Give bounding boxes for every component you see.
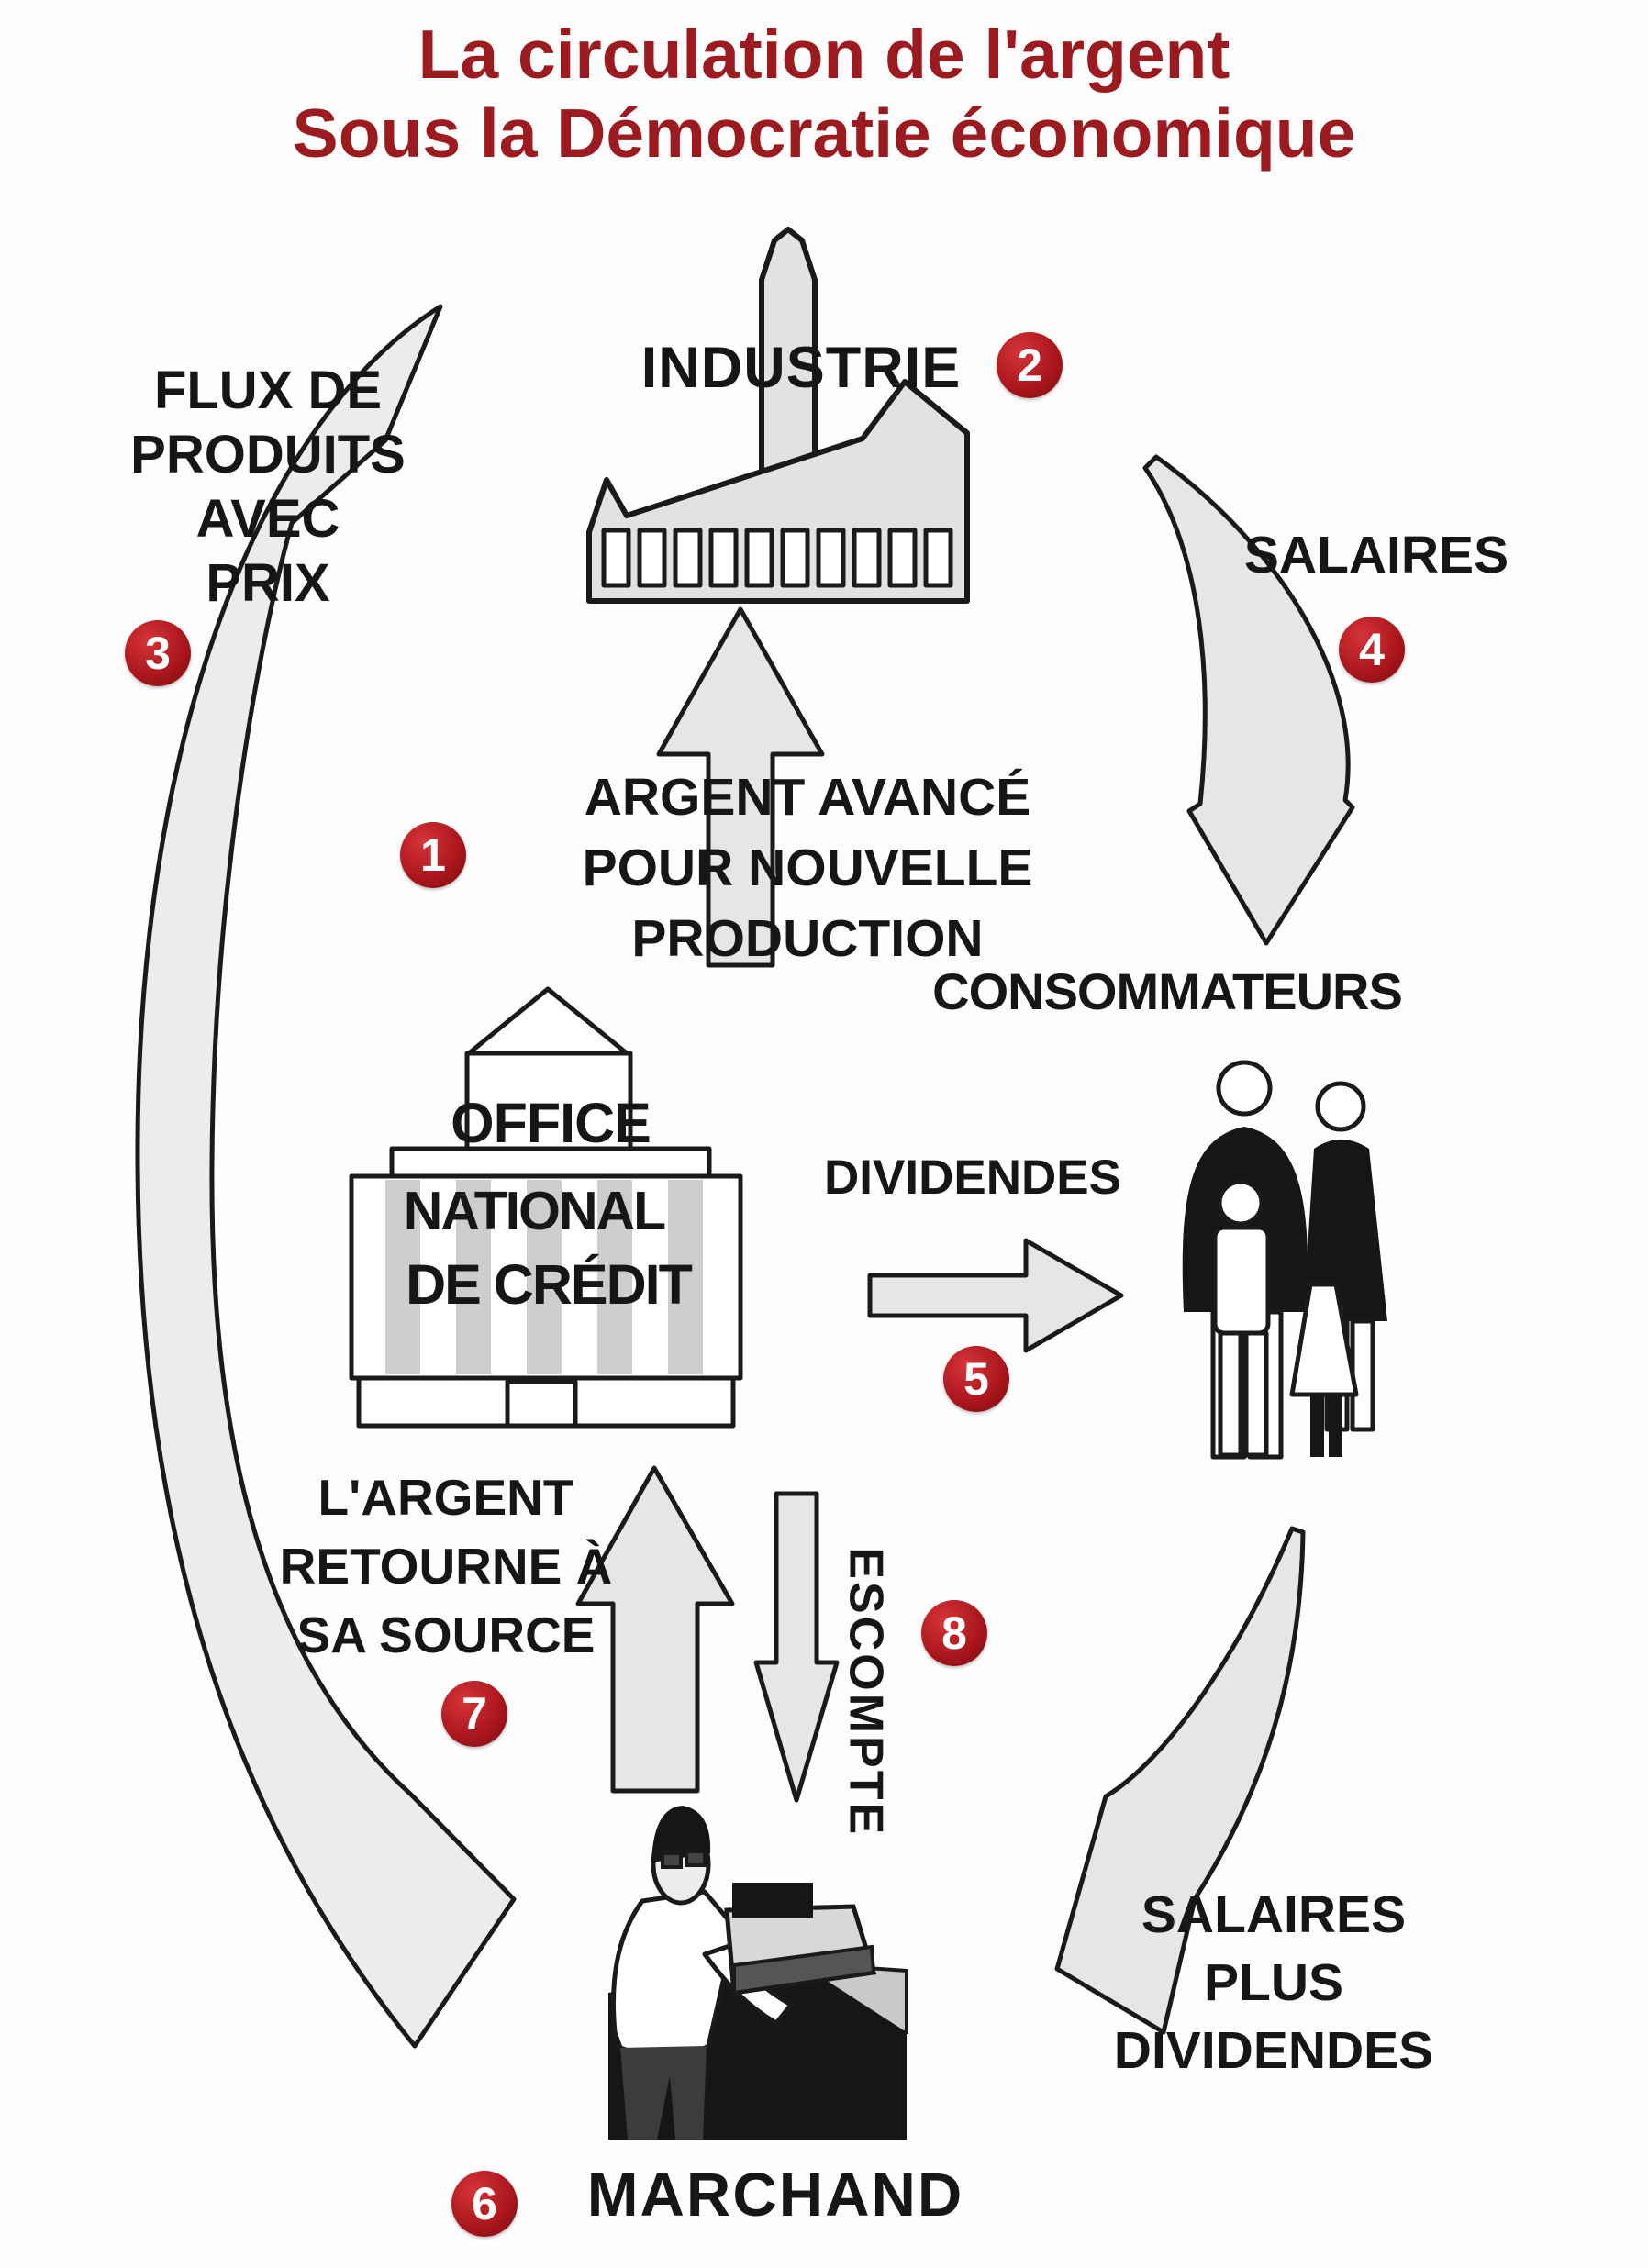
escompte-label: ESCOMPTE (841, 1499, 891, 1884)
marchand-label: MARCHAND (528, 2163, 1023, 2228)
factory-icon (589, 229, 967, 601)
salaires-dividendes-line1: SALAIRES (1044, 1888, 1503, 1943)
flux-produits-line1: FLUX DE (57, 363, 479, 419)
merchant-glasses (663, 1853, 681, 1867)
dividendes-arrow (870, 1240, 1121, 1351)
family-icon (1183, 1062, 1387, 1457)
consommateurs-label: CONSOMMATEURS (869, 965, 1465, 1019)
father-head (1219, 1062, 1270, 1114)
badge-6-marchand: 6 (451, 2171, 518, 2237)
dividendes-label: DIVIDENDES (817, 1152, 1129, 1204)
mother-head (1318, 1084, 1364, 1129)
argent-avance-line1: ARGENT AVANCÉ (541, 771, 1074, 826)
page-title-line1: La circulation de l'argent (37, 15, 1611, 94)
badge-3-flux-produits: 3 (125, 620, 191, 686)
badge-2-industrie: 2 (997, 332, 1063, 398)
diagram-canvas: La circulation de l'argent Sous la Démoc… (0, 0, 1648, 2268)
badge-4-salaires: 4 (1339, 617, 1405, 683)
industrie-label: INDUSTRIE (585, 338, 1017, 398)
page-title-line2: Sous la Démocratie économique (37, 94, 1611, 172)
flux-produits-line3: AVEC (57, 492, 479, 548)
salaires-label: SALAIRES (1193, 528, 1560, 584)
boy-head (1219, 1182, 1262, 1224)
cash-register-display (732, 1883, 813, 1918)
office-label-line1: OFFICE (393, 1094, 708, 1152)
retour-source-line2: RETOURNE À (239, 1540, 652, 1594)
escompte-arrow (756, 1494, 837, 1800)
badge-8-escompte: 8 (921, 1600, 987, 1666)
argent-avance-line3: PRODUCTION (541, 912, 1074, 967)
badge-7-retour-source: 7 (441, 1681, 507, 1747)
retour-source-line3: SA SOURCE (239, 1609, 652, 1662)
salaires-dividendes-line3: DIVIDENDES (1044, 2024, 1503, 2079)
girl-head (1306, 1245, 1341, 1280)
retour-source-line1: L'ARGENT (239, 1472, 652, 1525)
office-label-line2: NATIONAL (365, 1184, 703, 1240)
bank-door (507, 1382, 575, 1426)
badge-5-dividendes: 5 (943, 1346, 1009, 1412)
boy-body (1215, 1228, 1268, 1333)
flux-produits-line4: PRIX (57, 556, 479, 612)
badge-1-argent-avance: 1 (400, 822, 466, 888)
flux-produits-line2: PRODUITS (57, 428, 479, 484)
salaires-dividendes-line2: PLUS (1044, 1956, 1503, 2011)
argent-avance-line2: POUR NOUVELLE (541, 841, 1074, 896)
office-label-line3: DE CRÉDIT (367, 1255, 729, 1314)
